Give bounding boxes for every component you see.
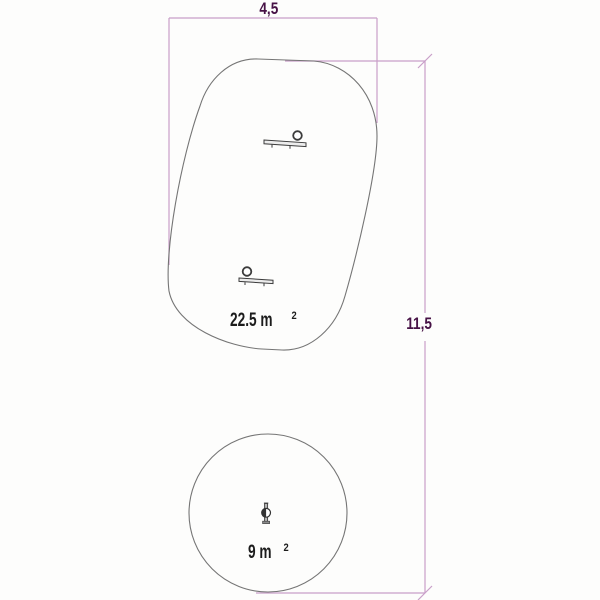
height-dimension-label: 11,5 — [401, 315, 437, 333]
rider-ring — [243, 267, 252, 276]
circle-zone-area-label: 9 m2 — [248, 543, 289, 563]
rounded-zone-outline — [168, 59, 377, 350]
rider-ring — [293, 131, 302, 140]
spring-rider-side-bottom-icon — [239, 267, 273, 286]
width-dimension-value: 4,5 — [260, 0, 279, 18]
spring-rider-front-icon — [262, 502, 271, 523]
rounded-zone-area-label: 22.5 m2 — [230, 311, 297, 331]
rider-board — [264, 140, 306, 147]
rounded-zone-area-superscript: 2 — [292, 310, 297, 322]
height-dimension-value: 11,5 — [406, 315, 432, 333]
spring-rider-side-top-icon — [264, 131, 306, 149]
rounded-zone-area-value: 22.5 m — [230, 311, 273, 331]
rider-base — [263, 521, 270, 523]
circle-zone-area-superscript: 2 — [283, 542, 288, 554]
circle-zone-area-value: 9 m — [248, 543, 272, 563]
width-dimension-label: 4,5 — [245, 0, 293, 18]
drawing-canvas — [0, 0, 600, 600]
technical-drawing: 4,5 11,5 22.5 m2 9 m2 — [0, 0, 600, 600]
rider-board — [239, 278, 273, 284]
